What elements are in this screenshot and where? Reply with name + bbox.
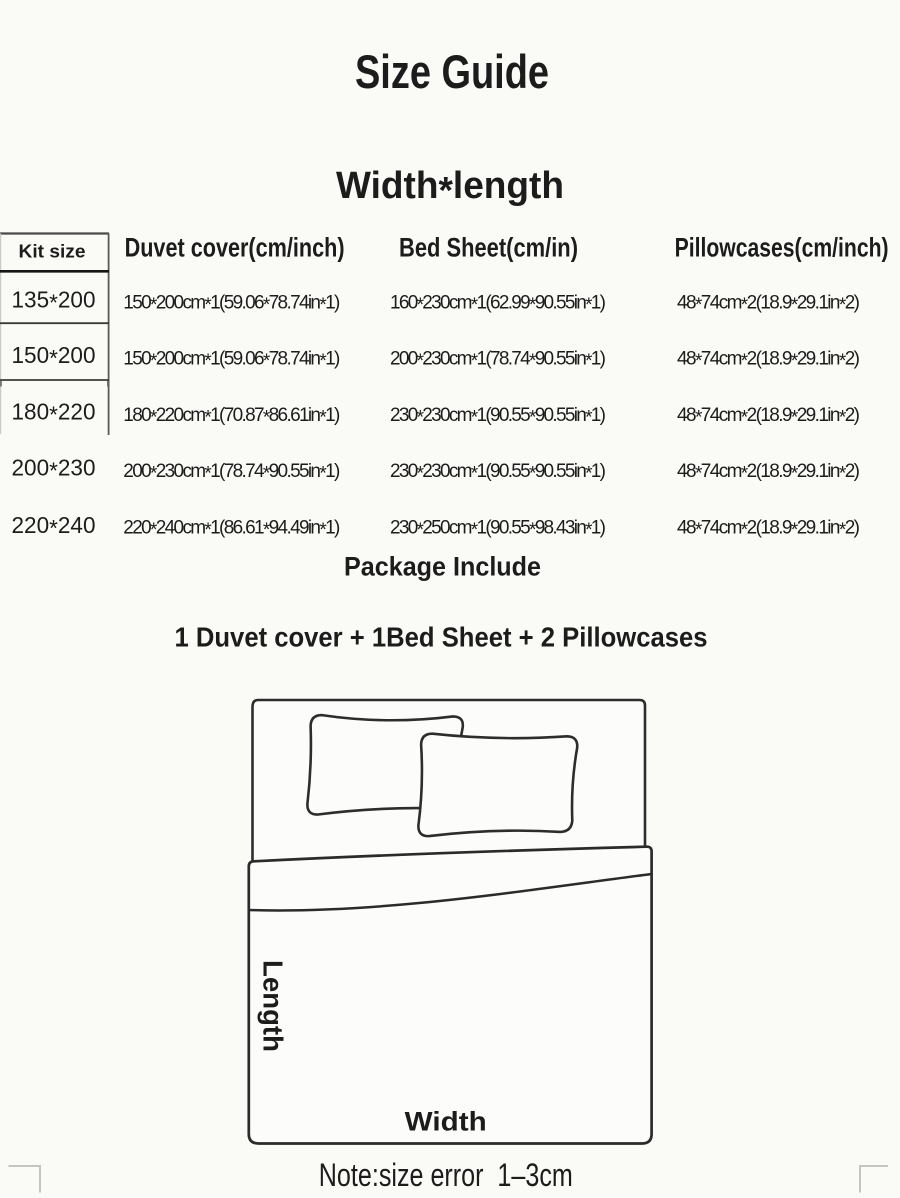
svg-text:180*220: 180*220 <box>12 399 96 428</box>
svg-text:Size Guide: Size Guide <box>355 45 549 98</box>
svg-text:220*240: 220*240 <box>12 512 96 541</box>
svg-text:Length: Length <box>258 960 289 1052</box>
svg-text:200*230: 200*230 <box>12 455 96 484</box>
svg-text:Package Include: Package Include <box>344 552 541 582</box>
svg-text:150*200cm*1(59.06*78.74in*1): 150*200cm*1(59.06*78.74in*1) <box>123 293 340 317</box>
svg-text:150*200: 150*200 <box>12 342 96 371</box>
svg-text:Kit size: Kit size <box>19 242 86 262</box>
svg-text:200*230cm*1(78.74*90.55in*1): 200*230cm*1(78.74*90.55in*1) <box>123 461 340 485</box>
svg-text:230*230cm*1(90.55*90.55in*1): 230*230cm*1(90.55*90.55in*1) <box>390 405 606 429</box>
svg-text:150*200cm*1(59.06*78.74in*1): 150*200cm*1(59.06*78.74in*1) <box>123 349 340 373</box>
svg-text:220*240cm*1(86.61*94.49in*1): 220*240cm*1(86.61*94.49in*1) <box>123 518 340 542</box>
svg-text:Width: Width <box>405 1107 487 1137</box>
svg-text:160*230cm*1(62.99*90.55in*1): 160*230cm*1(62.99*90.55in*1) <box>390 293 606 317</box>
svg-text:Pillowcases(cm/inch): Pillowcases(cm/inch) <box>675 233 889 263</box>
svg-text:48*74cm*2(18.9*29.1in*2): 48*74cm*2(18.9*29.1in*2) <box>677 518 860 542</box>
svg-text:Width*length: Width*length <box>336 165 564 212</box>
svg-text:Note:size error 1–3cm: Note:size error 1–3cm <box>319 1157 573 1193</box>
svg-text:48*74cm*2(18.9*29.1in*2): 48*74cm*2(18.9*29.1in*2) <box>677 405 860 429</box>
svg-text:Duvet cover(cm/inch): Duvet cover(cm/inch) <box>125 233 345 263</box>
svg-text:Bed Sheet(cm/in): Bed Sheet(cm/in) <box>399 233 578 263</box>
svg-text:230*250cm*1(90.55*98.43in*1): 230*250cm*1(90.55*98.43in*1) <box>390 518 606 542</box>
svg-text:48*74cm*2(18.9*29.1in*2): 48*74cm*2(18.9*29.1in*2) <box>677 349 860 373</box>
svg-text:180*220cm*1(70.87*86.61in*1): 180*220cm*1(70.87*86.61in*1) <box>123 405 340 429</box>
svg-text:1 Duvet cover + 1Bed Sheet + 2: 1 Duvet cover + 1Bed Sheet + 2 Pillowcas… <box>175 621 708 652</box>
svg-text:200*230cm*1(78.74*90.55in*1): 200*230cm*1(78.74*90.55in*1) <box>390 349 606 373</box>
svg-text:48*74cm*2(18.9*29.1in*2): 48*74cm*2(18.9*29.1in*2) <box>677 293 860 317</box>
svg-text:48*74cm*2(18.9*29.1in*2): 48*74cm*2(18.9*29.1in*2) <box>677 461 860 485</box>
svg-text:230*230cm*1(90.55*90.55in*1): 230*230cm*1(90.55*90.55in*1) <box>390 461 606 485</box>
svg-text:135*200: 135*200 <box>12 287 96 316</box>
